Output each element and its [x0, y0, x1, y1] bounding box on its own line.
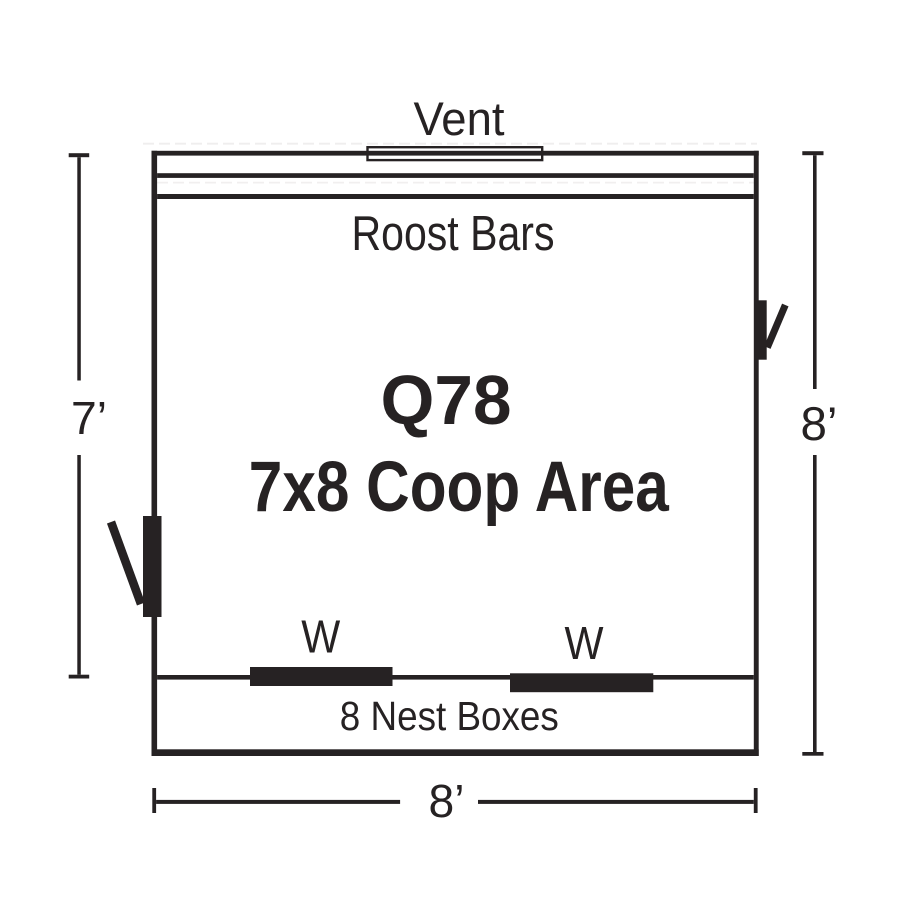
svg-text:7x8 Coop Area: 7x8 Coop Area	[249, 448, 669, 527]
svg-text:W: W	[301, 611, 340, 663]
svg-text:8 Nest Boxes: 8 Nest Boxes	[340, 693, 559, 739]
svg-text:W: W	[565, 617, 604, 669]
svg-text:7’: 7’	[71, 392, 107, 444]
svg-text:8’: 8’	[801, 397, 838, 450]
svg-text:Vent: Vent	[414, 93, 505, 146]
svg-text:8’: 8’	[429, 775, 465, 827]
svg-text:Q78: Q78	[381, 361, 512, 439]
svg-text:Roost Bars: Roost Bars	[352, 207, 555, 261]
